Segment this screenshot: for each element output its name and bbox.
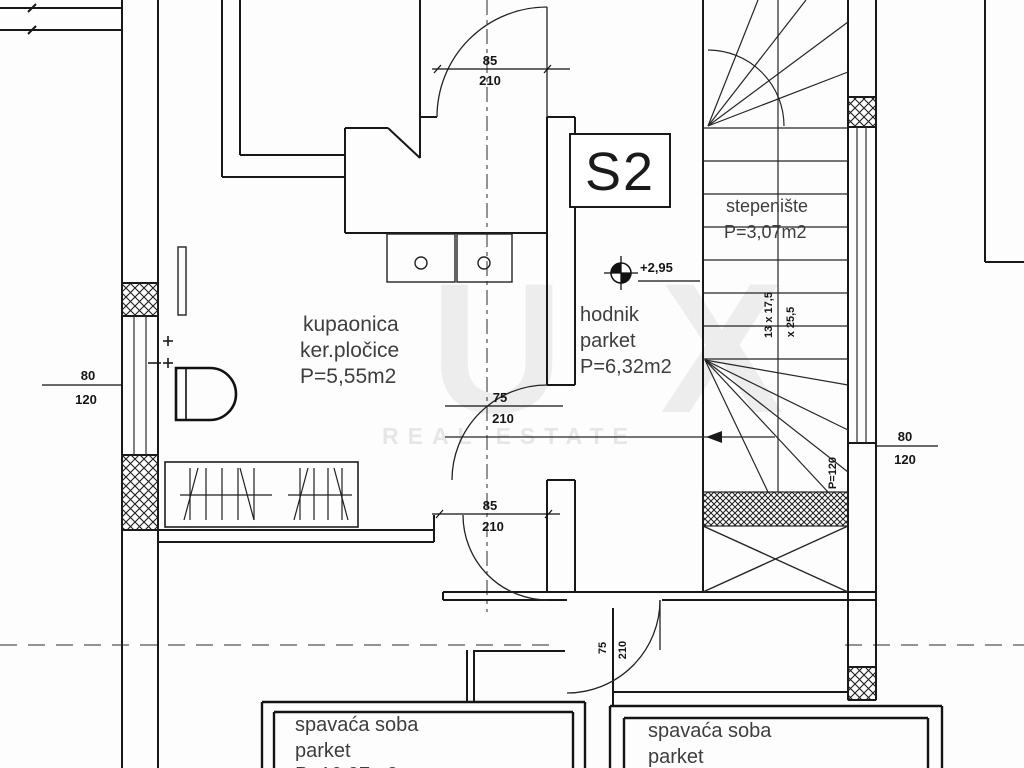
room-label-stepeniste: stepenište P=3,07m2 [724,196,808,242]
floor-plan-page: U X REAL ESTATE [0,0,1024,768]
door-lower-width: 85 [483,498,497,513]
top-left-room-walls [222,0,547,233]
door-top-width: 85 [483,53,497,68]
bedroom-right-name: spavaća soba [648,720,772,742]
kupaonica-finish: ker.pločice [300,339,399,362]
door-lower-height: 210 [482,519,504,534]
door-top-height: 210 [479,73,501,88]
dimension-door-lower: 85 210 [432,498,560,534]
watermark-subtitle: REAL ESTATE [382,423,637,449]
stair-landing-hatch [703,492,848,526]
door-bedroom-width: 75 [597,642,609,654]
parapet-label: P=120 [827,457,839,489]
watermark-letter-2: X [660,246,783,452]
stair-riser-note: 13 x 17,5 [763,292,775,338]
floor-plan-drawing: U X REAL ESTATE [0,0,1024,768]
dimension-door-top: 85 210 [432,53,570,88]
window-left-height: 120 [75,392,97,407]
room-label-bedroom-right: spavaća soba parket [648,720,772,768]
hodnik-finish: parket [580,330,636,352]
lower-hall-walls [158,515,876,706]
elevation-value: +2,95 [640,260,673,275]
bedroom-right-finish: parket [648,746,704,768]
hodnik-name: hodnik [580,304,640,326]
bedroom-left-area: P=10,97m2 [295,764,398,768]
kupaonica-area: P=5,55m2 [300,365,396,388]
window-right-width: 80 [898,429,912,444]
stair-tread-note: x 25,5 [785,307,797,338]
stair-void-cross [703,526,848,592]
door-bathroom-height: 210 [492,411,514,426]
room-label-bedroom-left: spavaća soba parket P=10,97m2 [295,714,419,768]
unit-label: S2 [585,142,655,202]
wardrobe [165,462,358,527]
left-wall-hatch [122,283,158,530]
kupaonica-name: kupaonica [303,313,399,336]
window-left-width: 80 [81,368,95,383]
stepeniste-area: P=3,07m2 [724,222,807,242]
left-window-glazing [134,316,146,455]
plumbing-valve-icons [148,336,173,368]
radiator [178,247,186,315]
hodnik-area: P=6,32m2 [580,356,672,378]
door-bathroom-width: 75 [493,390,507,405]
toilet [176,368,236,420]
door-arc-lower [463,515,548,600]
door-bedroom-height: 210 [617,641,629,659]
stepeniste-name: stepenište [726,196,808,216]
bedroom-left-finish: parket [295,740,351,762]
window-right-height: 120 [894,452,916,467]
dimension-window-left: 80 120 [42,368,122,407]
dimension-window-right: 80 120 [876,429,938,467]
room-label-hodnik: hodnik parket P=6,32m2 [580,304,672,378]
bedroom-left-name: spavaća soba [295,714,419,736]
right-window-glazing [857,127,866,443]
room-label-kupaonica: kupaonica ker.pločice P=5,55m2 [300,313,399,388]
right-wall-hatch [848,97,876,700]
unit-marker: S2 [570,134,670,207]
